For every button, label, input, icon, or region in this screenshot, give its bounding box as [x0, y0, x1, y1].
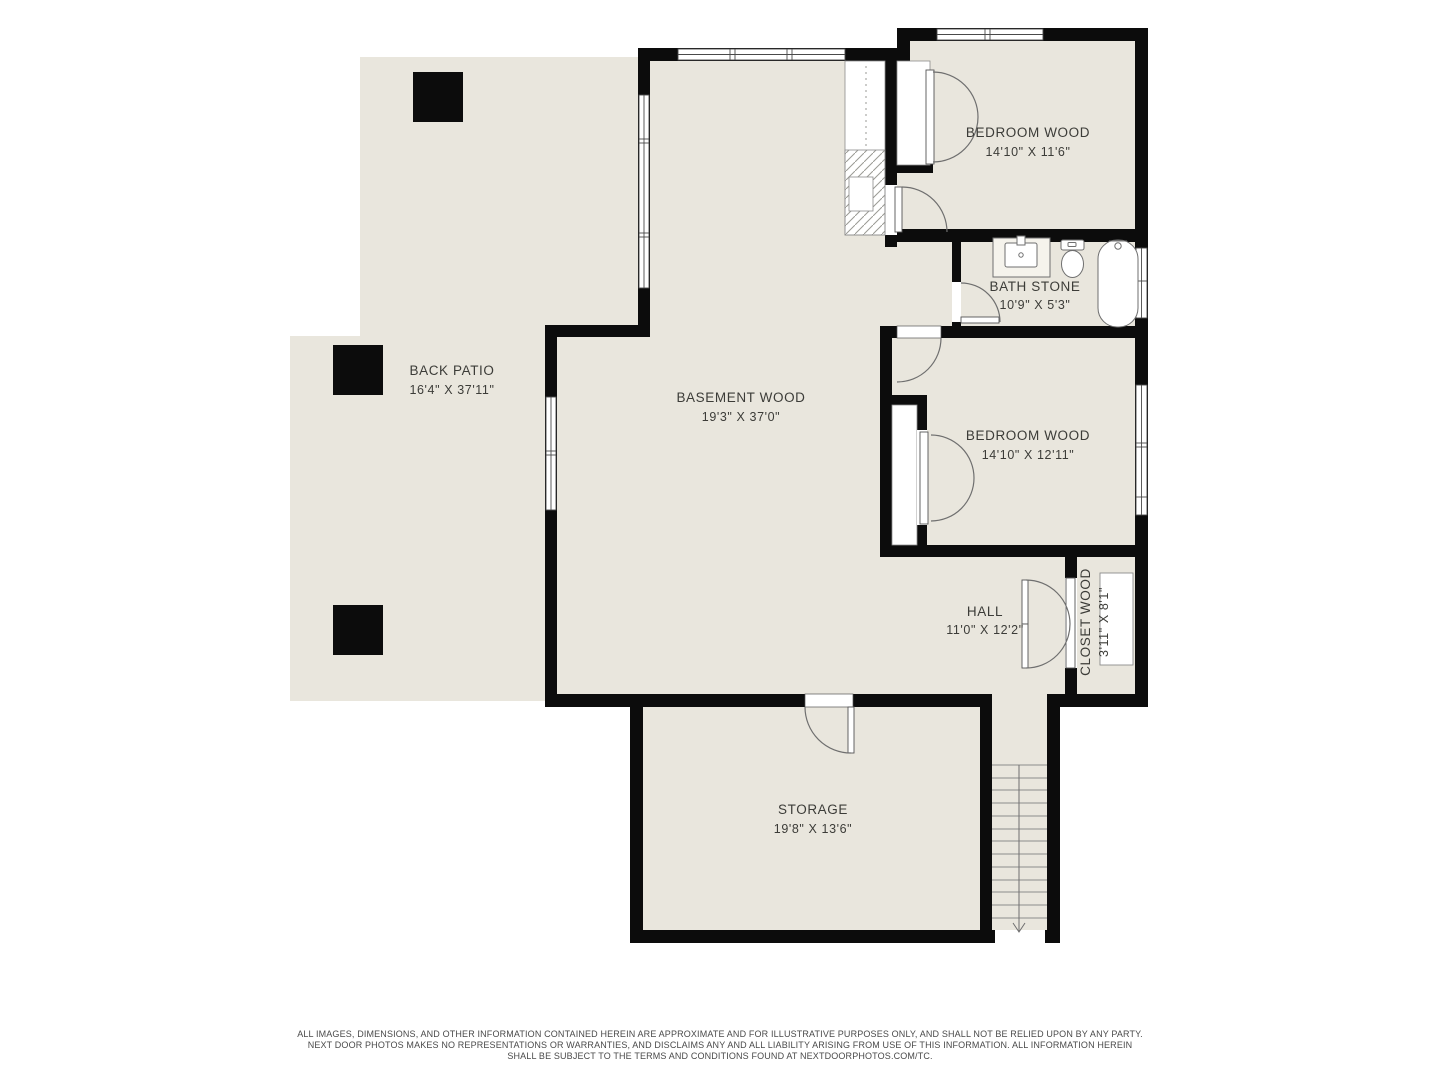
toilet	[1061, 240, 1084, 278]
room-dims-closet: 3'11" X 8'1"	[1097, 587, 1111, 657]
room-dims-bedroom-top: 14'10" X 11'6"	[985, 145, 1070, 159]
room-label-closet: CLOSET WOOD	[1078, 568, 1093, 676]
disclaimer-line: ALL IMAGES, DIMENSIONS, AND OTHER INFORM…	[0, 1029, 1440, 1040]
disclaimer-line: SHALL BE SUBJECT TO THE TERMS AND CONDIT…	[0, 1051, 1440, 1062]
room-dims-storage: 19'8" X 13'6"	[774, 822, 852, 836]
bedroom-right-closet-recess	[892, 405, 917, 545]
disclaimer-line: NEXT DOOR PHOTOS MAKES NO REPRESENTATION…	[0, 1040, 1440, 1051]
window-bedroom-top	[937, 29, 1043, 40]
bedroom-top-closet-recess	[897, 61, 930, 165]
window-basement-left-upper	[639, 95, 649, 288]
wall	[1135, 28, 1148, 707]
room-dims-bedroom-right: 14'10" X 12'11"	[982, 448, 1075, 462]
wall	[1047, 694, 1148, 707]
post	[333, 345, 383, 395]
room-label-basement: BASEMENT WOOD	[676, 390, 805, 405]
window-basement-top	[678, 49, 845, 60]
wall	[545, 694, 992, 707]
post	[413, 72, 463, 122]
room-label-bedroom-right: BEDROOM WOOD	[966, 428, 1090, 443]
room-dims-back-patio: 16'4" X 37'11"	[409, 383, 494, 397]
stair-shaft-upper	[845, 61, 885, 235]
room-label-storage: STORAGE	[778, 802, 848, 817]
bathtub	[1098, 240, 1138, 327]
wall	[1047, 694, 1060, 943]
wall	[880, 326, 892, 557]
wall	[897, 28, 910, 61]
room-label-back-patio: BACK PATIO	[409, 363, 494, 378]
room-label-bedroom-top: BEDROOM WOOD	[966, 125, 1090, 140]
floor-areas	[290, 32, 1144, 938]
wall	[980, 694, 992, 943]
wall	[545, 325, 557, 707]
wall	[545, 325, 650, 337]
stair-exit-gap	[995, 930, 1045, 943]
room-dims-basement: 19'3" X 37'0"	[702, 410, 780, 424]
disclaimer-footer: ALL IMAGES, DIMENSIONS, AND OTHER INFORM…	[0, 1029, 1440, 1062]
floorplan-page: BACK PATIO 16'4" X 37'11" BASEMENT WOOD …	[0, 0, 1440, 1080]
room-label-hall: HALL	[967, 604, 1003, 619]
room-dims-bath: 10'9" X 5'3"	[1000, 298, 1071, 312]
vanity-sink	[993, 236, 1050, 277]
wall	[880, 545, 1148, 557]
floorplan-canvas: BACK PATIO 16'4" X 37'11" BASEMENT WOOD …	[0, 0, 1440, 1080]
post	[333, 605, 383, 655]
room-label-bath: BATH STONE	[989, 279, 1080, 294]
window-bedroom-right	[1136, 385, 1147, 515]
room-dims-hall: 11'0" X 12'2"	[946, 623, 1024, 637]
wall	[630, 694, 643, 943]
window-basement-left-lower	[546, 397, 556, 510]
